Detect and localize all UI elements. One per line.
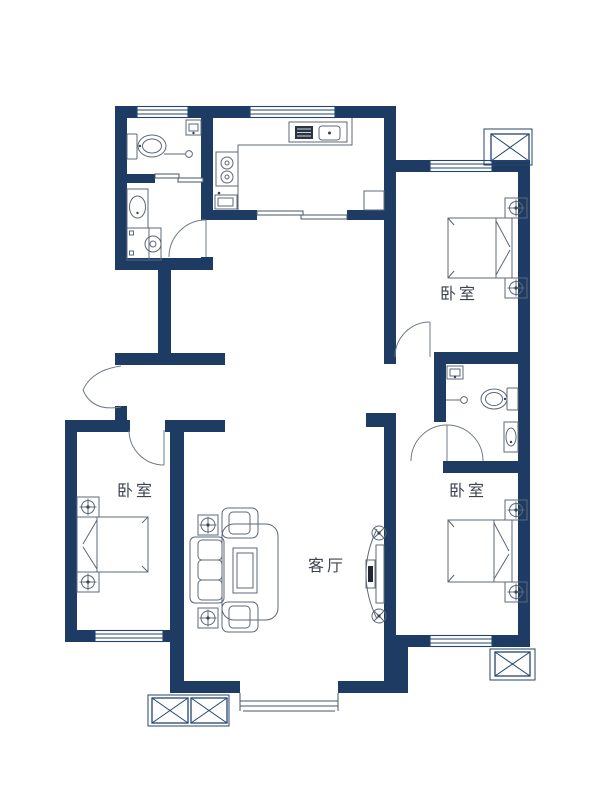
armchair-icon — [222, 602, 258, 632]
swing-door-icon — [411, 425, 483, 461]
speaker-icon — [372, 526, 386, 540]
ac-platform-icon — [484, 129, 532, 165]
wall-segment — [158, 270, 171, 353]
washbasin-icon — [447, 366, 463, 379]
wall-segment — [434, 364, 446, 422]
prep-sink-icon — [215, 192, 237, 209]
armchair-icon — [222, 508, 258, 538]
wall-segment — [347, 210, 384, 220]
swing-door-icon — [129, 430, 164, 465]
wall-segment — [434, 352, 530, 364]
toilet-icon — [127, 134, 166, 159]
wall-segment — [396, 160, 430, 172]
wall-segment — [65, 630, 95, 642]
tv-cabinet-icon — [366, 529, 384, 619]
room-label-bedroom-north: 卧室 — [440, 285, 478, 303]
plant-pot-icon — [198, 515, 218, 535]
bed-icon — [77, 517, 148, 572]
shower-icon — [164, 151, 192, 158]
ac-platform-icon — [490, 649, 535, 680]
wall-segment — [115, 174, 155, 183]
coffee-table-icon — [233, 548, 257, 593]
window-icon — [250, 107, 335, 118]
wall-segment — [170, 681, 240, 693]
wall-segment — [518, 160, 530, 647]
washing-machine-icon — [127, 228, 161, 260]
room-label-bedroom-southeast: 卧室 — [449, 482, 487, 500]
wall-segment — [115, 106, 127, 270]
room-label-living-room: 客厅 — [308, 557, 346, 575]
sliding-door-icon — [257, 211, 347, 219]
windows — [95, 107, 492, 712]
bed-icon — [448, 520, 512, 582]
wall-segment — [396, 635, 430, 647]
wall-segment — [213, 210, 257, 220]
swing-door-icon — [169, 220, 206, 257]
wall-segment — [443, 461, 530, 473]
wall-segment — [213, 106, 250, 118]
wall-segment — [115, 353, 225, 365]
bay-window-icon — [240, 693, 338, 711]
wall-segment — [492, 635, 530, 647]
window-icon — [430, 636, 492, 647]
floor-plan: 卧室 卧室 卧室 客厅 — [0, 0, 600, 800]
nightstand-lamp-icon — [77, 572, 99, 592]
window-icon — [430, 161, 492, 172]
plant-pot-icon — [198, 608, 218, 628]
wall-segment — [384, 106, 396, 364]
stove-icon — [216, 152, 238, 186]
wall-segment — [201, 106, 213, 220]
speaker-icon — [372, 609, 386, 623]
sliding-door-icon — [155, 174, 203, 182]
washbasin-icon — [186, 120, 201, 135]
floor-plan-drawing: 卧室 卧室 卧室 客厅 — [0, 0, 600, 800]
wall-segment — [65, 420, 77, 642]
doors — [83, 174, 483, 465]
entry-door — [83, 366, 121, 408]
wall-segment — [201, 257, 213, 270]
kitchen-sink-icon — [289, 122, 347, 142]
ac-platform-icon — [148, 695, 229, 726]
vanity-sink-icon — [504, 422, 518, 452]
window-icon — [137, 107, 188, 118]
shower-icon — [446, 397, 467, 404]
fridge-icon — [364, 191, 384, 210]
wall-segment — [338, 681, 396, 693]
nightstand-lamp-icon — [77, 497, 99, 517]
wall-segment — [170, 420, 184, 693]
toilet-icon — [481, 388, 518, 410]
window-icon — [95, 631, 163, 642]
furniture — [77, 118, 527, 632]
sofa-icon — [190, 537, 224, 603]
vanity-sink-icon — [127, 189, 148, 228]
swing-door-icon — [395, 322, 430, 357]
room-label-bedroom-southwest: 卧室 — [117, 482, 155, 500]
bed-icon — [448, 218, 512, 278]
